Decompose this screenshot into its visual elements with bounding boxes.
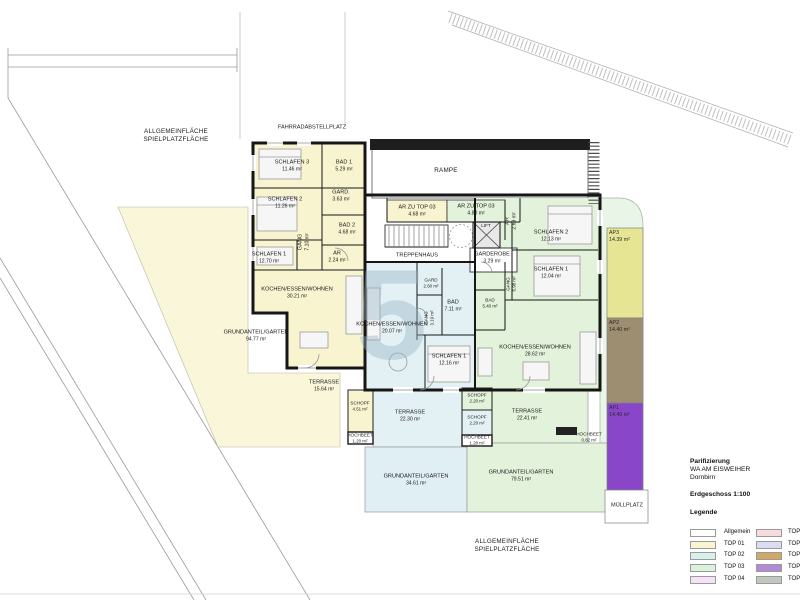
legend-label-top08: TOP 08 xyxy=(788,564,800,570)
legend-swatch-top05 xyxy=(756,529,782,537)
legend-swatch-top09 xyxy=(756,576,782,584)
room-label-top01-ar: AR 2.24 m² xyxy=(328,250,345,263)
legend-swatch-top01 xyxy=(690,541,716,549)
survey-lines xyxy=(240,12,345,139)
room-label-top02-bad: BAD 7.11 m² xyxy=(445,299,462,312)
fence-strip xyxy=(448,11,793,147)
room-label-top02-gard: GARD 2.60 m² xyxy=(424,277,439,288)
room-label-top01-kochen: KOCHEN/ESSEN/WOHNEN 30.21 m² xyxy=(261,286,332,299)
legend-label-top07: TOP 07 xyxy=(788,552,800,558)
parking-label-ap1: AP1 14.40 m² xyxy=(609,405,630,419)
room-label-top01-schlafen2: SCHLAFEN 2 11.26 m² xyxy=(268,196,303,209)
room-label-lift: LIFT xyxy=(481,223,490,229)
room-label-top03-terrasse: TERRASSE 22.41 m² xyxy=(512,408,542,421)
legend-label-top03: TOP 03 xyxy=(724,564,744,570)
room-label-top01-hochbeet: HOCHBEET 1.20 m² xyxy=(347,432,373,443)
room-label-top02-schlafen1: SCHLAFEN 1 12.16 m² xyxy=(432,353,467,366)
legend-label-top09: TOP 09 xyxy=(788,576,800,582)
room-label-common-ar: AR 2.69 m² xyxy=(504,212,517,229)
label-fahrradabstellplatz: FAHRRADABSTELLPLATZ xyxy=(278,125,346,132)
room-label-top03-schlafen2: SCHLAFEN 2 12.13 m² xyxy=(534,229,569,242)
legend-label-top02: TOP 02 xyxy=(724,552,744,558)
watermark-digit: 5 xyxy=(356,252,427,380)
titleblock-project: Parifizierung xyxy=(690,458,730,465)
label-muellplatz: MÜLLPLATZ xyxy=(611,503,643,510)
room-label-top03-garten: GRUNDANTEIL/GARTEN 79.51 m² xyxy=(489,469,554,482)
ramp-area xyxy=(372,149,588,198)
room-label-treppenhaus: TREPPENHAUS xyxy=(396,253,438,260)
label-allgemeinflaeche-bottom: ALLGEMEINFLÄCHE SPIELPLATZFLÄCHE xyxy=(474,538,539,554)
legend-label-top06: TOP 06 xyxy=(788,541,800,547)
room-label-top02-schopf: SCHOPF 2.20 m² xyxy=(467,414,486,425)
room-label-top02-hochbeet: HOCHBEET 1.20 m² xyxy=(464,434,490,445)
legend-swatch-top03 xyxy=(690,564,716,572)
room-label-top02-garten: GRUNDANTEIL/GARTEN 34.61 m² xyxy=(384,473,449,486)
room-label-top01-gard: GARD. 3.63 m² xyxy=(332,189,350,202)
room-label-top01-schopf: SCHOPF 4.51 m² xyxy=(350,400,369,411)
room-label-ar-zu-top03-b: AR ZU TOP 03 4.80 m² xyxy=(457,203,494,216)
room-label-ar-zu-top03-a: AR ZU TOP 03 4.68 m² xyxy=(398,204,435,217)
room-label-top03-schlafen1: SCHLAFEN 1 12.04 m² xyxy=(534,266,569,279)
room-label-top01-gang: GANG 7.10 m² xyxy=(297,233,310,250)
room-label-top03-hochbeet: HOCHBEET 0.82 m² xyxy=(576,431,602,442)
titleblock-city: Dornbirn xyxy=(690,474,715,481)
room-label-top03-gang: GANG 6.98 m² xyxy=(505,277,516,292)
titleblock-floor: Erdgeschoss 1:100 xyxy=(690,491,750,498)
room-label-top03-schopf: SCHOPF 2.20 m² xyxy=(467,392,486,403)
label-allgemeinflaeche-top: ALLGEMEINFLÄCHE SPIELPLATZFLÄCHE xyxy=(143,128,208,144)
room-label-garderobe: GARDEROBE 3.29 m² xyxy=(474,251,510,264)
room-label-top02-terrasse: TERRASSE 22.30 m² xyxy=(395,409,425,422)
legend-label-top05: TOP 05 xyxy=(788,529,800,535)
parking-spaces xyxy=(605,228,648,523)
parking-label-ap3: AP3 14.39 m² xyxy=(609,230,630,244)
room-label-top03-bad: BAD 5.40 m² xyxy=(483,297,498,308)
room-label-top01-bad1: BAD 1 5.29 m² xyxy=(335,159,352,172)
legend-swatch-top07 xyxy=(756,552,782,560)
legend-label-allgemein: Allgemein xyxy=(724,529,750,535)
room-label-top01-schlafen1: SCHLAFEN 1 12.70 m² xyxy=(252,251,287,264)
legend-swatch-top02 xyxy=(690,552,716,560)
hochbeet-top03-box xyxy=(556,427,577,435)
room-label-top01-bad2: BAD 2 4.68 m² xyxy=(338,222,355,235)
room-label-top01-schlafen3: SCHLAFEN 3 11.46 m² xyxy=(275,159,310,172)
parking-label-ap2: AP2 14.40 m² xyxy=(609,320,630,334)
legend-swatch-top04 xyxy=(690,576,716,584)
legend-swatch-top06 xyxy=(756,541,782,549)
north-wall-hatch xyxy=(370,139,590,150)
legend-title: Legende xyxy=(690,509,717,516)
room-label-top03-kochen: KOCHEN/ESSEN/WOHNEN 28.62 m² xyxy=(499,344,570,357)
room-label-top01-garten: GRUNDANTEIL/GARTEN 94.77 m² xyxy=(224,329,289,342)
legend-label-top01: TOP 01 xyxy=(724,541,744,547)
titleblock-development: WA AM EISWEIHER xyxy=(690,466,750,473)
room-label-top02-kochen: KOCHEN/ESSEN/WOHNEN 20.07 m² xyxy=(356,321,427,334)
floor-plan-page: 5 ALLGEMEINFLÄCHE SPIELPLATZFLÄCHE FAHRR… xyxy=(0,0,800,600)
legend-swatch-top08 xyxy=(756,564,782,572)
legend-swatch-allgemein xyxy=(690,529,716,537)
label-rampe: RAMPE xyxy=(434,167,457,175)
room-label-top01-terrasse: TERRASSE 15.64 m² xyxy=(309,379,339,392)
legend-label-top04: TOP 04 xyxy=(724,576,744,582)
